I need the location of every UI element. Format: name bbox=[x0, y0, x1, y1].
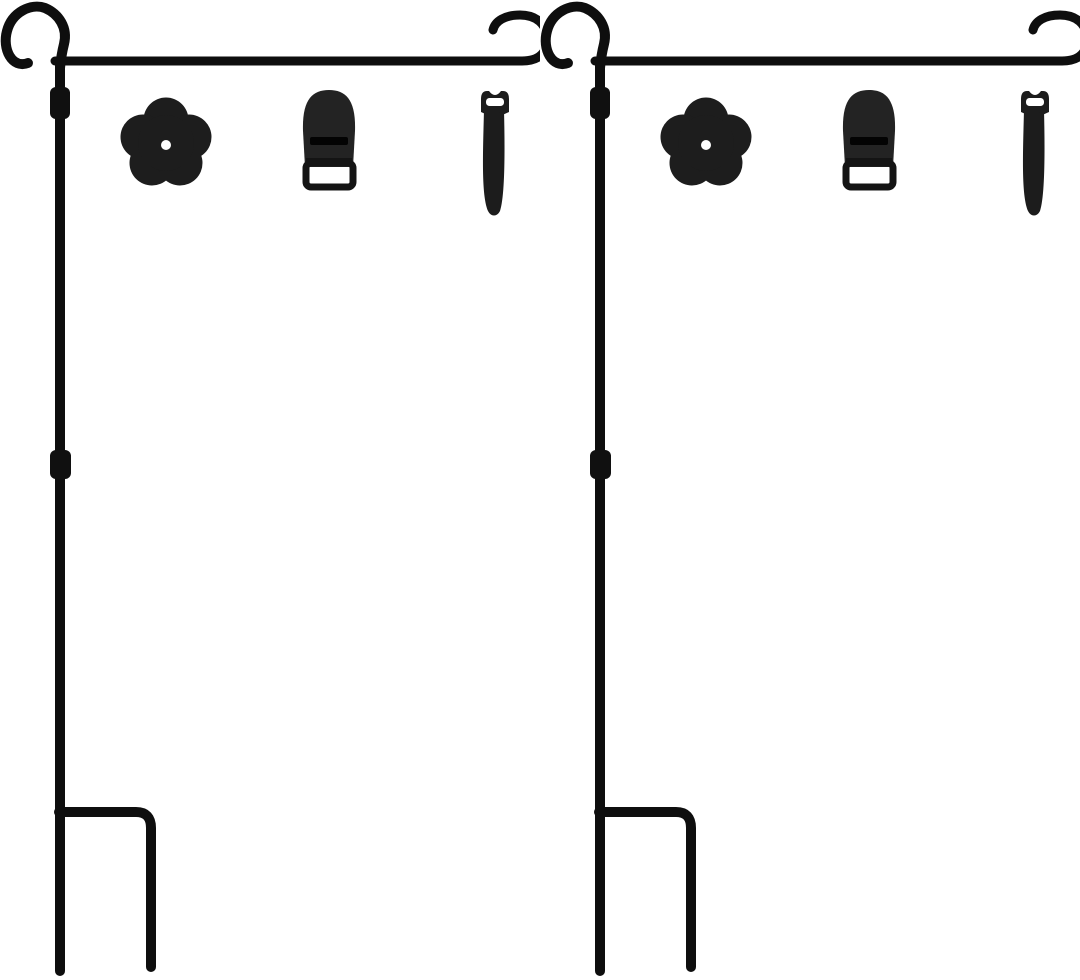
pole-joint-middle bbox=[590, 450, 611, 479]
flower-center-hole bbox=[161, 140, 171, 150]
garden-flag-stand-kit-2 bbox=[540, 0, 1080, 980]
flag-clip bbox=[303, 90, 355, 187]
tie-strap bbox=[1021, 91, 1049, 216]
pole-joint-middle bbox=[50, 450, 71, 479]
tie-strap bbox=[481, 91, 509, 216]
flower-center-hole bbox=[701, 140, 711, 150]
flower-stopper bbox=[121, 98, 212, 186]
hanger-arm-with-hook bbox=[55, 15, 540, 61]
flower-stopper bbox=[661, 98, 752, 186]
clip-slot bbox=[850, 137, 888, 145]
clip-body bbox=[843, 90, 895, 167]
flag-clip bbox=[843, 90, 895, 187]
tie-body bbox=[483, 110, 505, 216]
hanger-arm-with-hook bbox=[595, 15, 1080, 61]
ground-fork bbox=[599, 812, 691, 967]
clip-body bbox=[303, 90, 355, 167]
tie-body bbox=[1023, 110, 1045, 216]
ground-fork bbox=[59, 812, 151, 967]
garden-flag-stand-kit-1 bbox=[0, 0, 540, 980]
pole-joint-upper bbox=[590, 87, 610, 119]
flag-stand bbox=[546, 7, 1080, 971]
product-photo bbox=[0, 0, 1080, 980]
pole-joint-upper bbox=[50, 87, 70, 119]
tie-slot bbox=[1026, 98, 1044, 106]
tie-slot bbox=[486, 98, 504, 106]
flag-stand bbox=[6, 7, 540, 971]
clip-slot bbox=[310, 137, 348, 145]
